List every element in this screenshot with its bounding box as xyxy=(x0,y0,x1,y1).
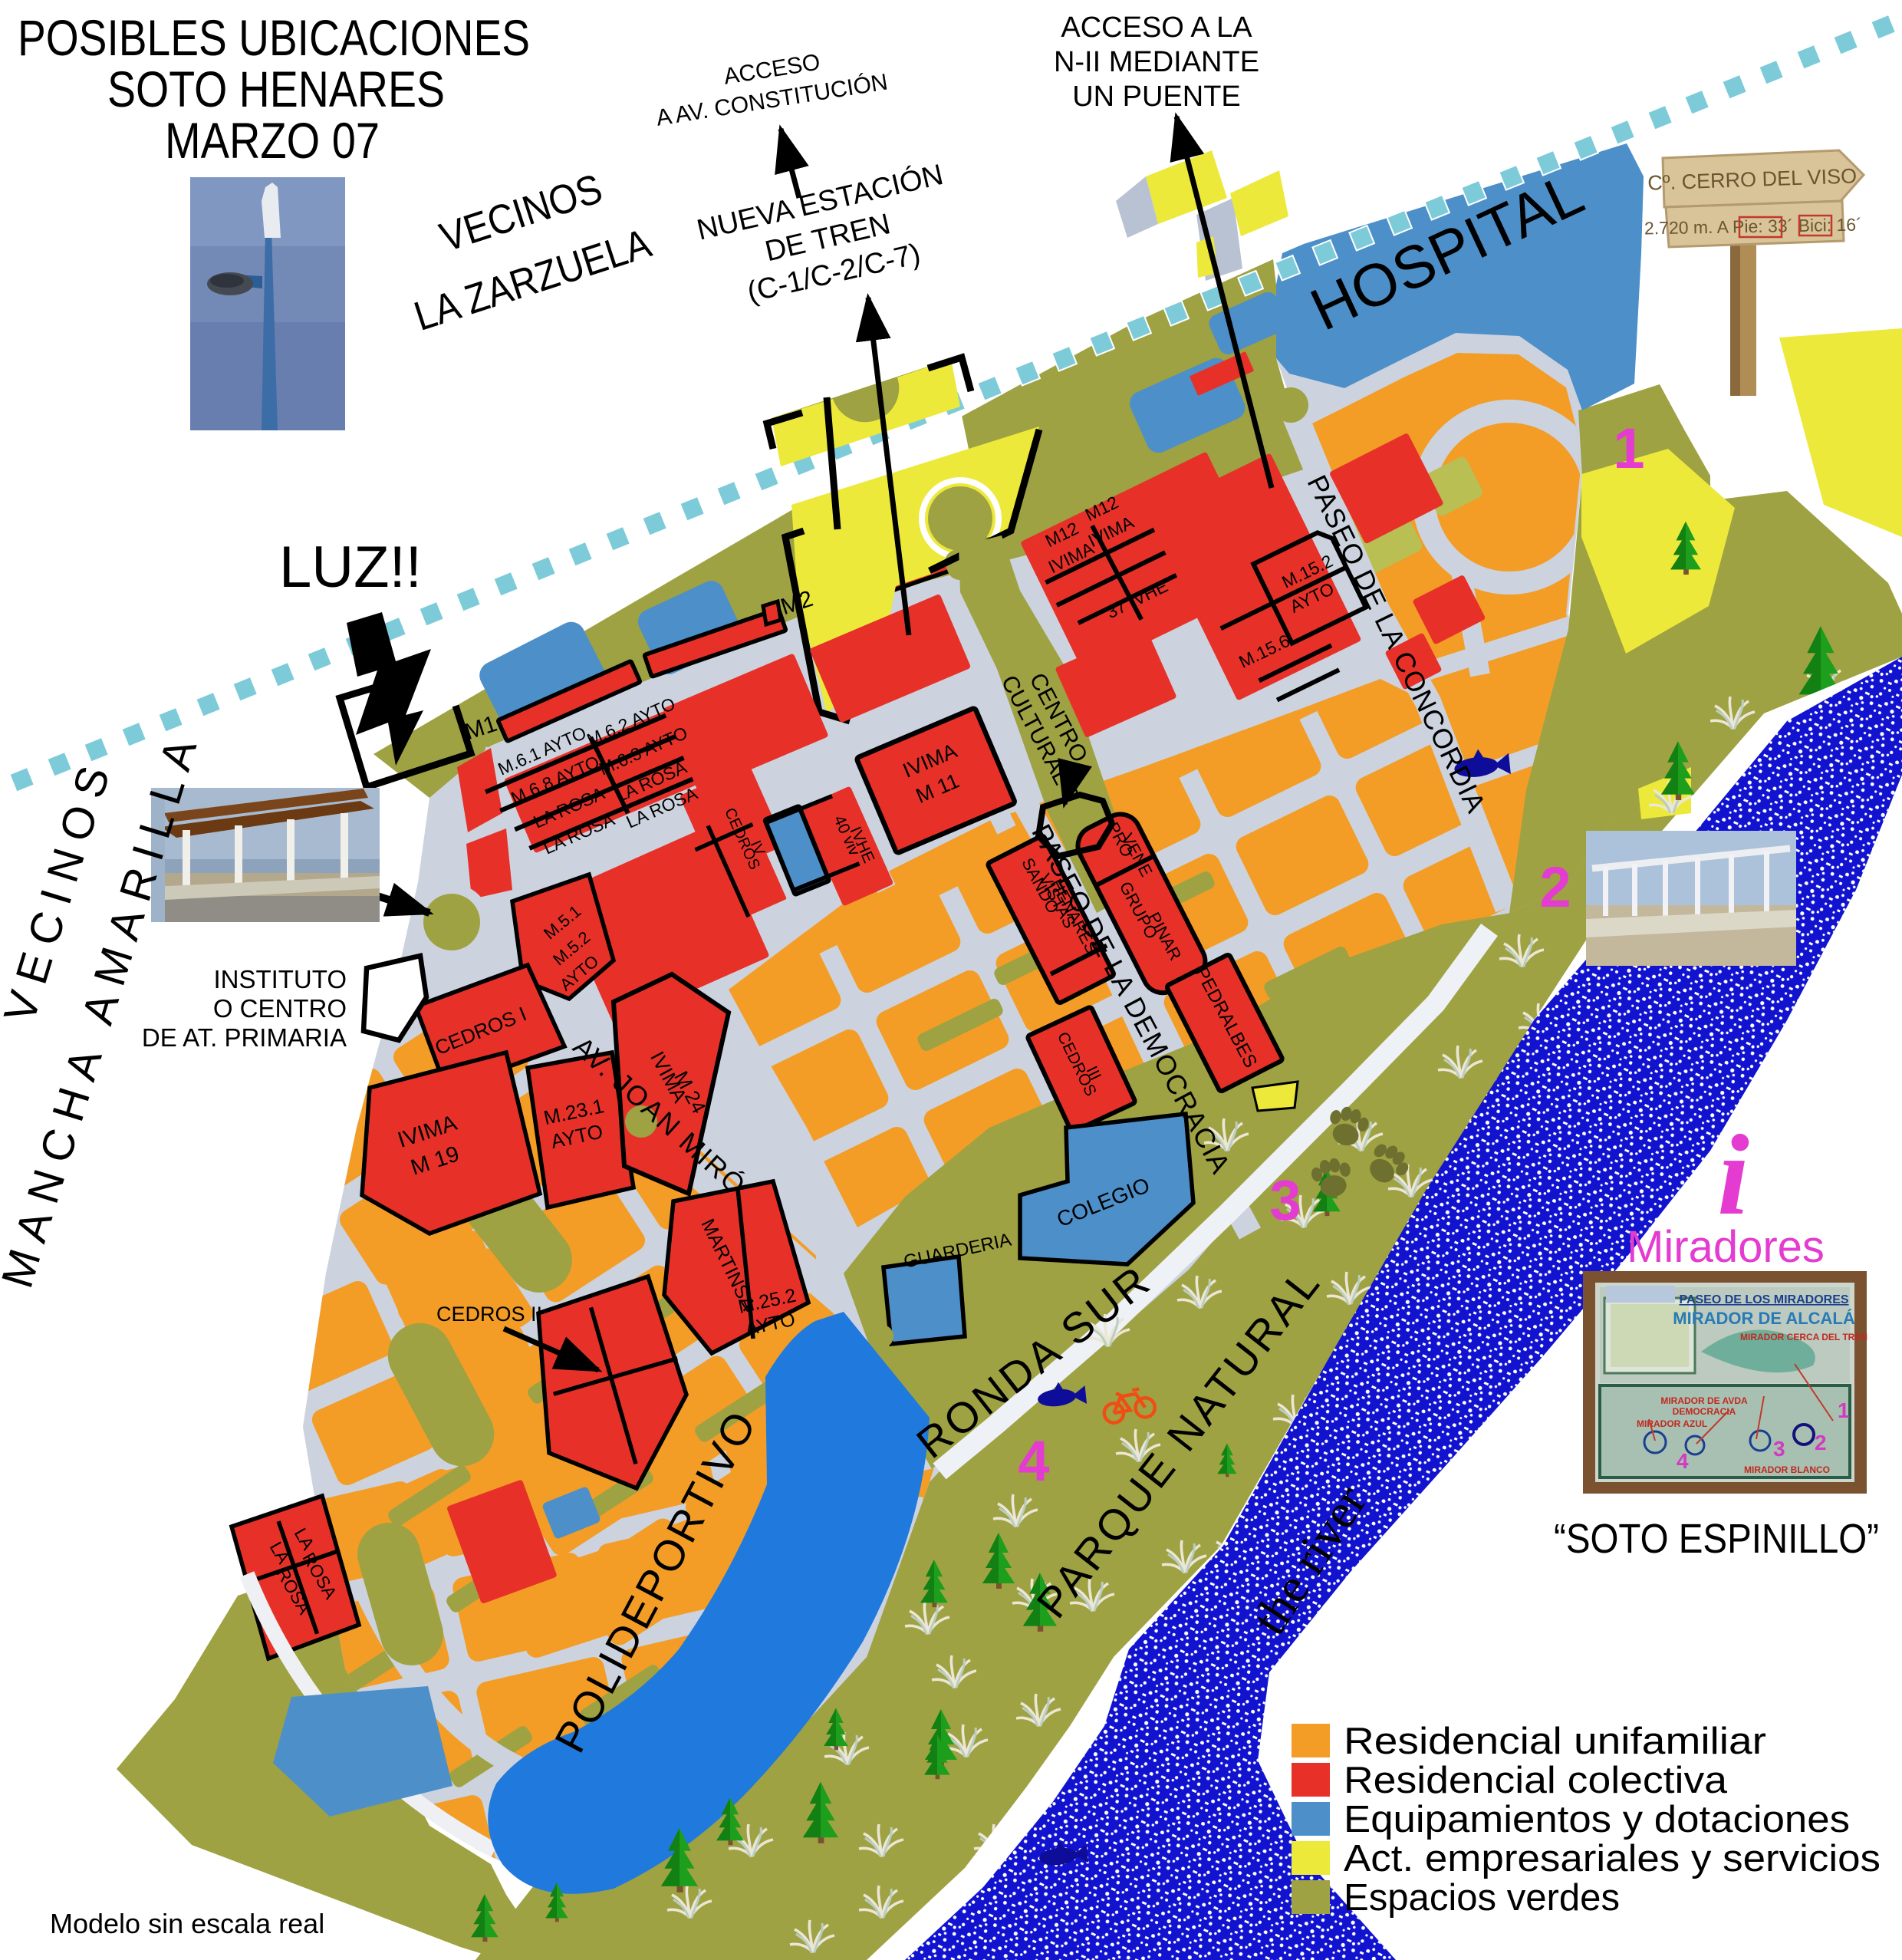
svg-text:Espacios verdes: Espacios verdes xyxy=(1344,1877,1620,1919)
svg-text:LUZ!!: LUZ!! xyxy=(279,535,422,600)
svg-text:MIRADOR CERCA DEL TREN: MIRADOR CERCA DEL TREN xyxy=(1740,1332,1867,1342)
svg-text:MARZO 07: MARZO 07 xyxy=(165,112,380,169)
svg-text:SOTO HENARES: SOTO HENARES xyxy=(107,61,445,117)
svg-text:2: 2 xyxy=(1815,1431,1827,1454)
svg-text:4: 4 xyxy=(1677,1449,1689,1473)
svg-text:4: 4 xyxy=(1018,1429,1049,1493)
svg-text:2: 2 xyxy=(1539,855,1571,919)
svg-text:MIRADOR BLANCO: MIRADOR BLANCO xyxy=(1744,1464,1830,1475)
svg-text:Act. empresariales y servicios: Act. empresariales y servicios xyxy=(1344,1838,1881,1879)
svg-text:Residencial unifamiliar: Residencial unifamiliar xyxy=(1344,1721,1766,1762)
svg-text:PASEO DE LOS MIRADORES: PASEO DE LOS MIRADORES xyxy=(1679,1293,1848,1306)
svg-text:O CENTRO: O CENTRO xyxy=(213,994,347,1023)
svg-text:CEDROS II: CEDROS II xyxy=(436,1303,542,1326)
svg-text:MIRADOR DE AVDA: MIRADOR DE AVDA xyxy=(1660,1395,1748,1406)
svg-text:1: 1 xyxy=(1838,1398,1850,1422)
svg-text:Modelo sin escala real: Modelo sin escala real xyxy=(50,1908,324,1939)
svg-text:3: 3 xyxy=(1269,1168,1301,1232)
svg-text:Equipamientos y dotaciones: Equipamientos y dotaciones xyxy=(1344,1799,1850,1840)
svg-text:Miradores: Miradores xyxy=(1627,1222,1825,1272)
svg-text:UN PUENTE: UN PUENTE xyxy=(1072,81,1241,113)
svg-text:DEMOCRACIA: DEMOCRACIA xyxy=(1673,1406,1736,1417)
svg-text:MIRADOR DE ALCALÁ: MIRADOR DE ALCALÁ xyxy=(1673,1309,1855,1328)
svg-text:3: 3 xyxy=(1773,1437,1785,1461)
svg-text:INSTITUTO: INSTITUTO xyxy=(213,965,347,993)
svg-text:ACCESO A LA: ACCESO A LA xyxy=(1061,12,1252,44)
svg-text:MIRADOR AZUL: MIRADOR AZUL xyxy=(1637,1418,1707,1429)
svg-text:“SOTO ESPINILLO”: “SOTO ESPINILLO” xyxy=(1554,1516,1879,1562)
svg-text:POSIBLES UBICACIONES: POSIBLES UBICACIONES xyxy=(18,9,530,66)
svg-text:DE AT. PRIMARIA: DE AT. PRIMARIA xyxy=(142,1023,347,1052)
svg-text:1: 1 xyxy=(1613,417,1644,480)
svg-text:N-II MEDIANTE: N-II MEDIANTE xyxy=(1054,46,1259,78)
svg-text:i: i xyxy=(1717,1112,1749,1239)
svg-text:Residencial colectiva: Residencial colectiva xyxy=(1344,1760,1728,1801)
